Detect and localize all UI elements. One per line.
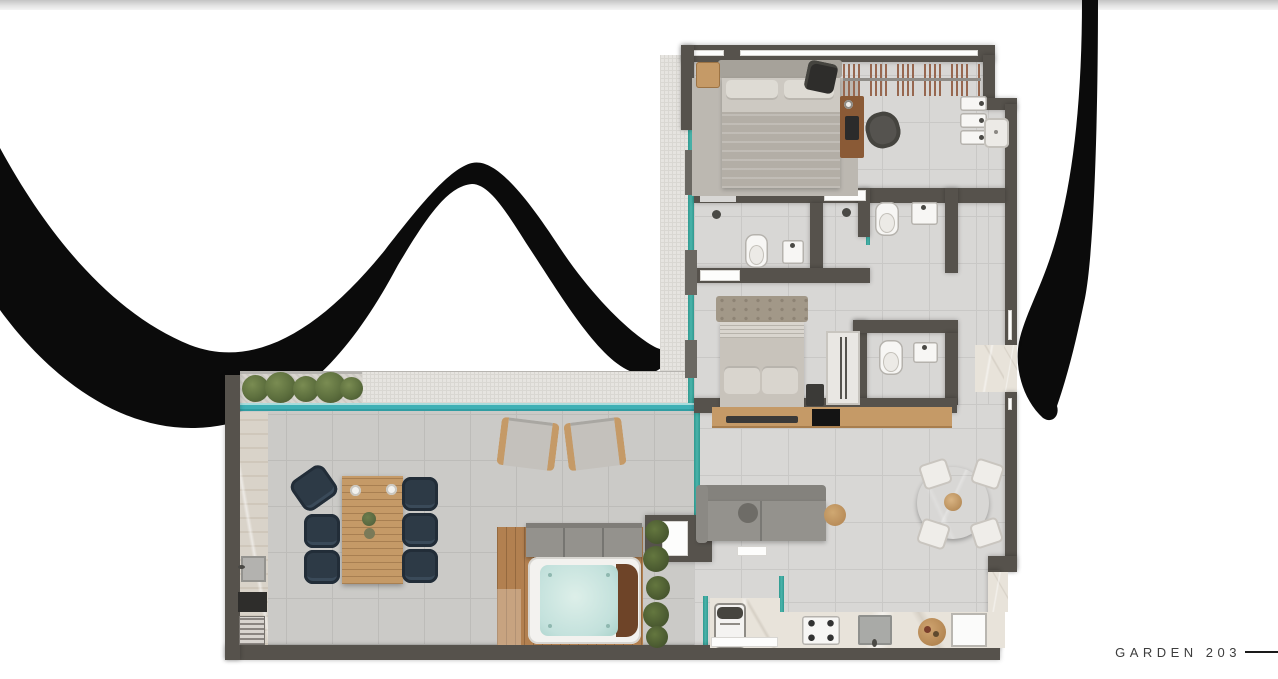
stove bbox=[802, 616, 840, 645]
sink-a bbox=[782, 240, 804, 264]
unit-label: GARDEN 203 bbox=[1115, 645, 1241, 660]
outdoor-sofa bbox=[526, 523, 642, 557]
deck-step bbox=[497, 589, 521, 645]
outdoor-chair-2 bbox=[304, 514, 340, 548]
reading-chair bbox=[803, 59, 839, 95]
bbq-grill bbox=[238, 592, 267, 612]
side-table bbox=[824, 504, 846, 526]
window-slit-2 bbox=[740, 50, 978, 56]
hedge-5 bbox=[646, 626, 668, 648]
desk-lamp bbox=[844, 100, 853, 109]
sofa-arm bbox=[696, 485, 708, 543]
lounge-chair-1 bbox=[496, 417, 559, 472]
wall-terrace-left bbox=[225, 375, 240, 660]
unit-label-row: GARDEN 203 bbox=[1000, 643, 1278, 661]
vanity-sink-2 bbox=[960, 113, 987, 128]
wall-bath3-top bbox=[853, 320, 958, 333]
vanity-sink-3 bbox=[960, 130, 987, 145]
kitchen-sink bbox=[858, 615, 892, 645]
outdoor-chair-3 bbox=[304, 550, 340, 584]
serving-board bbox=[918, 618, 946, 646]
door-hall-slit bbox=[737, 546, 767, 556]
closet-rack bbox=[843, 64, 981, 96]
jacuzzi-water bbox=[540, 565, 618, 636]
entry-door bbox=[1004, 345, 1017, 392]
table-plate-1 bbox=[350, 485, 361, 496]
floorplan-canvas: GARDEN 203 bbox=[0, 0, 1278, 679]
toilet-c bbox=[879, 340, 903, 375]
lounge-chair-2 bbox=[563, 417, 626, 472]
glass-pier-2 bbox=[685, 250, 697, 295]
table-bowl-2 bbox=[364, 528, 375, 539]
bbq-sink bbox=[241, 556, 266, 582]
shower-head-b bbox=[842, 208, 851, 217]
unit-label-rule bbox=[1245, 651, 1278, 654]
bbq-grate bbox=[239, 616, 265, 645]
curve-right-graphic bbox=[1018, 0, 1098, 420]
outdoor-chair-5 bbox=[402, 513, 438, 547]
bedroom2-pillow-1 bbox=[724, 366, 760, 394]
kitchen-counter-return bbox=[988, 572, 1008, 612]
border-strip-top bbox=[362, 372, 694, 403]
water-channel bbox=[240, 403, 694, 411]
outdoor-chair-6 bbox=[402, 549, 438, 583]
hedge-1 bbox=[645, 520, 669, 544]
toilet-a bbox=[745, 234, 768, 268]
fridge bbox=[951, 613, 987, 647]
master-pillow-1 bbox=[726, 80, 778, 100]
bedroom2-blanket-fold bbox=[720, 322, 804, 338]
glass-pier-3 bbox=[685, 340, 697, 378]
hedge-2 bbox=[643, 546, 669, 572]
jacuzzi-wood-edge bbox=[616, 564, 638, 637]
shrub-2 bbox=[265, 372, 296, 403]
wardrobe bbox=[826, 331, 860, 405]
hedge-4 bbox=[643, 602, 669, 628]
sink-c bbox=[913, 342, 938, 363]
laundry-door bbox=[711, 637, 778, 647]
wall-right-slit-2 bbox=[1008, 398, 1012, 410]
door-bath-a bbox=[700, 270, 740, 281]
wall-right-low bbox=[1005, 392, 1017, 570]
entry-floor-pad bbox=[975, 345, 1005, 392]
outdoor-chair-4 bbox=[402, 477, 438, 511]
sofa-seat bbox=[698, 501, 826, 541]
nightstand bbox=[696, 62, 720, 88]
table-plate-2 bbox=[386, 484, 397, 495]
bedroom2-bench bbox=[806, 384, 824, 406]
vanity-sink-1 bbox=[960, 96, 987, 111]
desk-laptop bbox=[845, 116, 859, 140]
shrub-5 bbox=[340, 377, 363, 400]
master-bed-blanket bbox=[722, 112, 840, 188]
window-slit-1 bbox=[690, 50, 724, 56]
table-bowl-1 bbox=[362, 512, 376, 526]
closet-rod bbox=[843, 78, 981, 81]
shower-tray bbox=[984, 118, 1009, 148]
shower-head-a bbox=[712, 210, 721, 219]
table-centerpiece bbox=[944, 493, 962, 511]
bedroom2-pillow-2 bbox=[762, 366, 798, 394]
hedge-3 bbox=[646, 576, 670, 600]
sofa-pillow bbox=[738, 503, 758, 523]
wall-bath-divider-b bbox=[945, 188, 958, 273]
soundbar bbox=[726, 416, 798, 423]
tv bbox=[812, 409, 840, 426]
sink-b bbox=[911, 202, 938, 225]
bedroom2-headboard bbox=[716, 296, 808, 322]
glass-laundry-1 bbox=[703, 596, 708, 645]
wall-bath3-right bbox=[945, 333, 958, 405]
wall-bath-divider-a bbox=[810, 203, 823, 268]
toilet-b bbox=[875, 202, 899, 236]
wall-right-slit-1 bbox=[1008, 310, 1012, 340]
